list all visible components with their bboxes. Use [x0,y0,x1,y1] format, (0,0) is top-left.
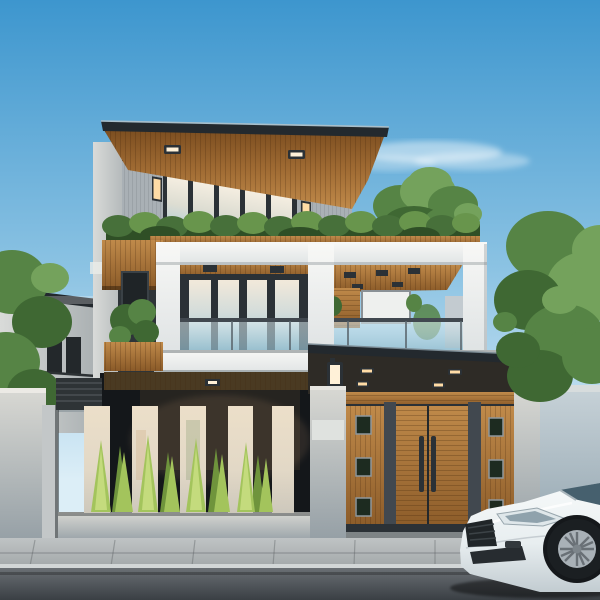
scene-canvas [0,0,600,600]
gate-post [384,402,396,532]
house-render-image [0,0,600,600]
gate-pillar-left [310,386,346,538]
neighbor-slat-fence [56,378,102,410]
ceiling-light [270,266,284,273]
lantern-left [327,358,343,387]
side-planter-box [104,342,163,371]
left-boundary-wall [0,390,46,540]
gate-handle [431,436,436,492]
wall-sconce [152,176,162,202]
right-tree [493,211,600,402]
car-grille [465,519,497,547]
fence-base [58,512,316,542]
ceiling-light [203,265,217,272]
gate-handle [419,436,424,492]
entry-soffit [104,372,310,390]
gate-left-panel [343,406,385,532]
neighbor-window [66,337,81,375]
roof-downlight [288,150,305,159]
gate-center-doors [396,406,468,532]
roof-downlight [164,145,181,154]
